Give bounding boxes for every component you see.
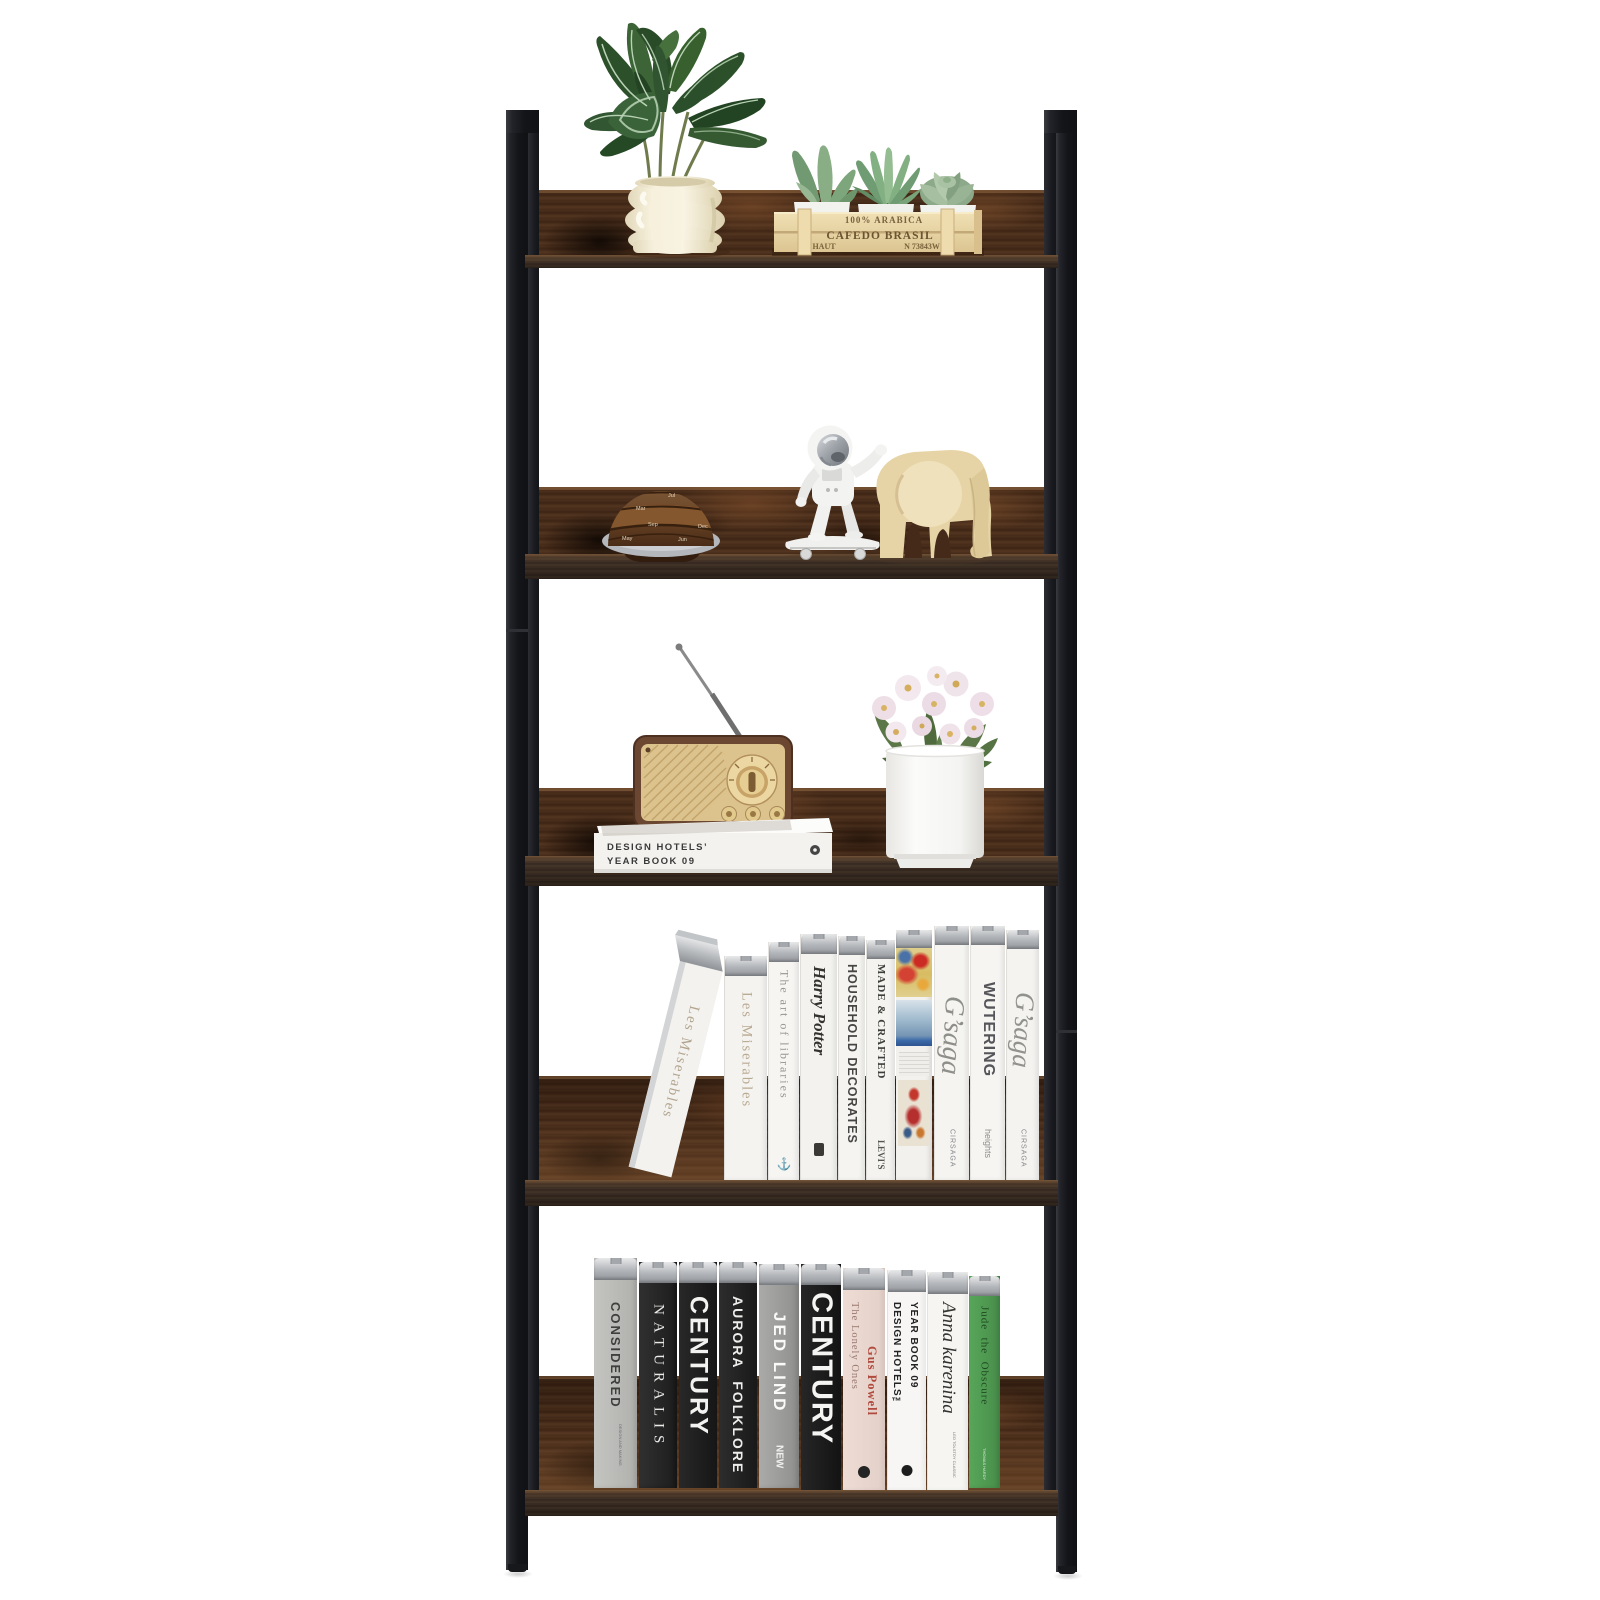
svg-text:Mar: Mar [636,506,646,512]
svg-text:YEARBOOK09: YEARBOOK09 [607,856,695,867]
svg-text:HAUT: HAUT [812,242,836,251]
svg-text:CAFEDO BRASIL: CAFEDO BRASIL [826,230,933,242]
svg-text:Sep: Sep [648,522,658,528]
svg-text:Dec: Dec [698,524,708,530]
svg-text:DESIGNHOTELS’: DESIGNHOTELS’ [607,842,708,853]
svg-text:Jun: Jun [678,537,687,543]
svg-text:Jul: Jul [668,493,675,499]
svg-text:May: May [622,536,633,542]
svg-text:N 73843W: N 73843W [904,242,940,251]
svg-text:100% ARABICA: 100% ARABICA [845,215,923,225]
